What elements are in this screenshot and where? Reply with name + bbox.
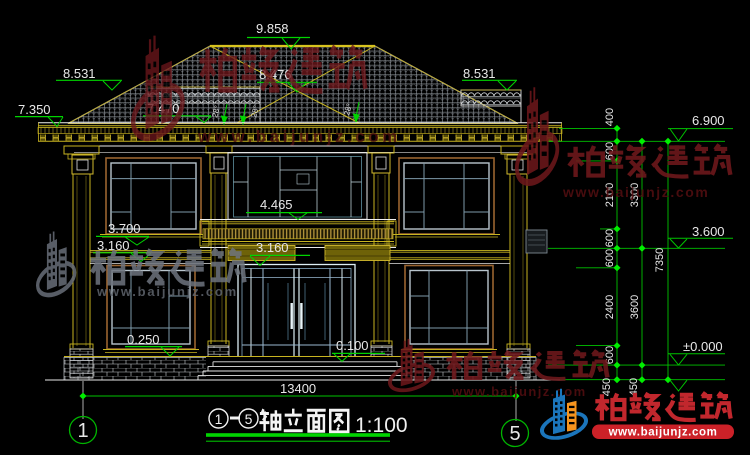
svg-text:0.250: 0.250 [127,332,160,347]
svg-text:www.baijunjz.com: www.baijunjz.com [96,284,238,299]
svg-text:3.160: 3.160 [256,240,289,255]
svg-text:www.baijunjz.com: www.baijunjz.com [197,127,401,146]
svg-text:9.858: 9.858 [256,21,289,36]
svg-text:5: 5 [509,423,520,445]
svg-text:3600: 3600 [629,295,641,319]
svg-text:600: 600 [604,249,616,267]
svg-text:0.100: 0.100 [336,338,369,353]
svg-text:8.531: 8.531 [463,66,496,81]
svg-text:3.700: 3.700 [108,221,141,236]
svg-text:13400: 13400 [280,381,316,396]
svg-text:6.900: 6.900 [692,113,725,128]
svg-text:5: 5 [245,411,253,427]
svg-text:3.600: 3.600 [692,224,725,239]
svg-text:www.baijunjz.com: www.baijunjz.com [608,427,718,439]
svg-text:4.465: 4.465 [260,197,293,212]
svg-text:7350: 7350 [654,248,666,272]
svg-text:1: 1 [215,411,223,427]
svg-text:2400: 2400 [604,295,616,319]
svg-text:600: 600 [604,229,616,247]
svg-text:8.531: 8.531 [63,66,96,81]
svg-text:1: 1 [77,420,88,442]
svg-text:7.350: 7.350 [18,102,51,117]
svg-text:450: 450 [601,378,613,396]
svg-text:400: 400 [604,108,616,126]
svg-text:www.baijunjz.com: www.baijunjz.com [562,184,709,200]
svg-text:±0.000: ±0.000 [683,339,723,354]
svg-text:www.baijunjz.com: www.baijunjz.com [451,384,587,399]
